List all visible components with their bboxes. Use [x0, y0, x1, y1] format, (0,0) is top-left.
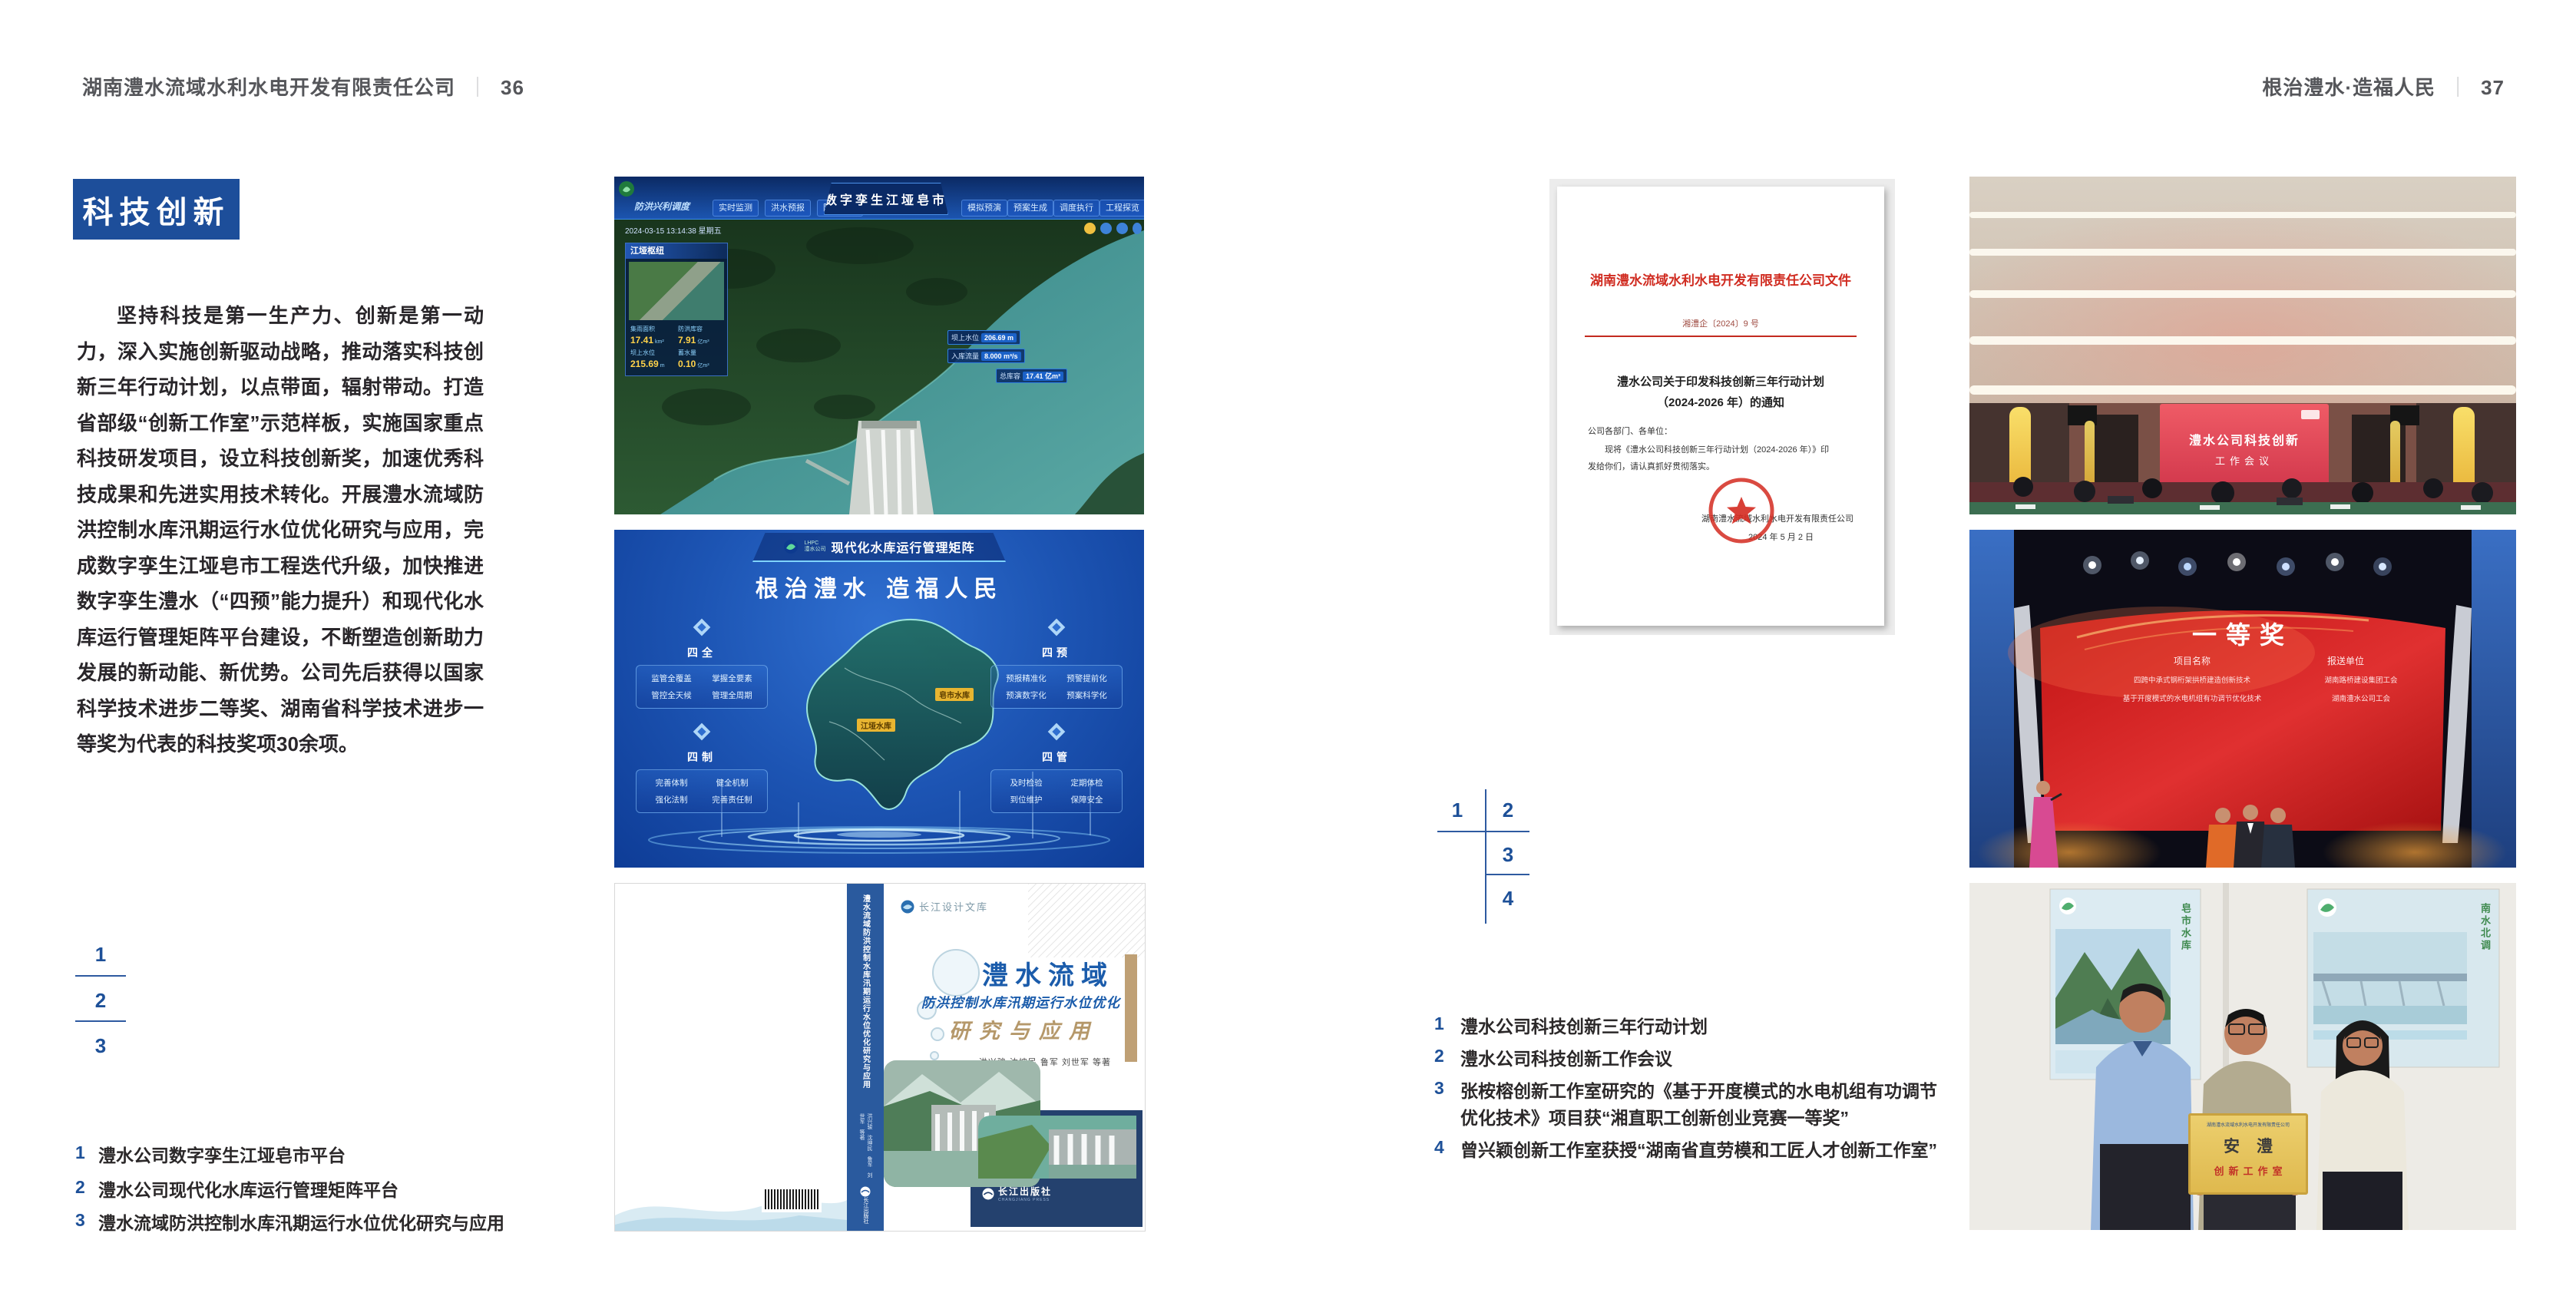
metric: 集雨面积 17.41km²: [630, 325, 675, 347]
diamond-icon: [690, 616, 713, 639]
tab-realtime-monitoring[interactable]: 实时监测: [713, 200, 759, 217]
photo-innovation-meeting: 澧水公司科技创新 工作会议: [1969, 177, 2516, 514]
layers-icon[interactable]: [1100, 223, 1112, 234]
group-item: 预报精准化: [997, 673, 1055, 684]
ripples: [649, 827, 1109, 853]
figure-official-document: 湖南澧水流域水利水电开发有限责任公司文件 湘澧企〔2024〕9 号 澧水公司关于…: [1549, 179, 1895, 635]
body-paragraph: 坚持科技是第一生产力、创新是第一动力，深入实施创新驱动战略，推动落实科技创新三年…: [77, 298, 484, 762]
document-number: 湘澧企〔2024〕9 号: [1557, 317, 1884, 329]
group-items: 预报精准化 预警提前化 预演数字化 预案科学化: [990, 665, 1123, 709]
figure-index-3: 3: [1493, 843, 1523, 867]
caption-number: 4: [1434, 1137, 1444, 1158]
app-logo-icon: [618, 180, 635, 197]
meeting-screen-line1: 澧水公司科技创新: [2160, 430, 2329, 448]
group-siguan: 四管 及时检验 定期体检 到位维护 保障安全: [990, 720, 1123, 813]
caption-text: 澧水流域防洪控制水库汛期运行水位优化研究与应用: [98, 1210, 504, 1237]
tab-flood-forecast[interactable]: 洪水预报: [765, 200, 811, 217]
caption-number: 1: [1434, 1013, 1444, 1034]
document-body-line2: 发给你们，请认真抓好贯彻落实。: [1588, 460, 1715, 472]
barcode: [765, 1189, 818, 1209]
figure-index-1: 1: [1442, 798, 1473, 822]
metric-value: 215.69: [630, 359, 659, 369]
dashboard-corner-label: 防洪兴利调度: [634, 200, 689, 213]
series-name: 长江设计文库: [919, 899, 988, 914]
group-item: 监管全覆盖: [643, 673, 700, 684]
watershed-map: [807, 620, 998, 809]
document-body-line1: 现将《澧水公司科技创新三年行动计划（2024-2026 年）》印: [1605, 443, 1829, 455]
book-title-main: 澧水流域: [982, 954, 1114, 992]
left-page-number: 36: [501, 76, 524, 99]
document-page: 湖南澧水流域水利水电开发有限责任公司文件 湘澧企〔2024〕9 号 澧水公司关于…: [1557, 187, 1884, 626]
group-items: 监管全覆盖 掌握全要素 管控全天候 管理全周期: [636, 665, 768, 709]
metric-unit: 亿m³: [697, 339, 709, 345]
group-item: 及时检验: [997, 777, 1055, 789]
tab-dispatch-execution[interactable]: 调度执行: [1053, 200, 1100, 217]
side-wall-right: [2472, 530, 2516, 868]
left-page-header: 湖南澧水流域水利水电开发有限责任公司｜36: [82, 72, 524, 101]
poster-right-label: 南水北调: [2478, 903, 2492, 1003]
chip-value: 206.69 m: [981, 333, 1017, 342]
caption-text: 澧水公司现代化水库运行管理矩阵平台: [98, 1177, 398, 1204]
caption-number: 2: [75, 1177, 85, 1198]
award-row2-unit: 湖南澧水公司工会: [2292, 693, 2430, 703]
group-item: 强化法制: [643, 794, 700, 805]
metric-label: 集雨面积: [630, 325, 675, 333]
tab-project-view[interactable]: 工程探览: [1100, 200, 1144, 217]
award-row1-project: 四跨中承式钢桁架拱桥建造创新技术: [2069, 674, 2315, 685]
group-items: 及时检验 定期体检 到位维护 保障安全: [990, 769, 1123, 813]
group-title: 四预: [990, 645, 1123, 660]
dashboard-title: 数字孪生江垭皂市: [824, 183, 948, 215]
chip-value: 8.000 m³/s: [981, 352, 1021, 361]
chip-label: 坝上水位: [951, 334, 979, 342]
reservoir-metrics: 集雨面积 17.41km² 防洪库容 7.91亿m³ 坝上水位 215.69m …: [626, 323, 727, 372]
metric-value: 7.91: [678, 335, 696, 346]
side-wall-left: [1969, 530, 2014, 868]
diamond-icon: [1045, 720, 1068, 743]
metric-value: 17.41: [630, 335, 653, 346]
caption-text: 曾兴颖创新工作室获授“湖南省直劳模和工匠人才创新工作室”: [1460, 1137, 1937, 1164]
caption-number: 2: [1434, 1046, 1444, 1066]
group-item: 管控全天候: [643, 689, 700, 701]
reservoir-panel: 江垭枢纽 集雨面积 17.41km² 防洪库容 7.91亿m³ 坝上水位 215…: [625, 243, 728, 376]
chip-value: 17.41 亿m³: [1023, 372, 1063, 381]
series-logo-icon: [901, 900, 914, 914]
caption-number: 1: [75, 1142, 85, 1163]
caption-text: 澧水公司科技创新三年行动计划: [1460, 1013, 1708, 1040]
group-item: 预演数字化: [997, 689, 1055, 701]
group-siyu: 四预 预报精准化 预警提前化 预演数字化 预案科学化: [990, 616, 1123, 709]
magazine-spread: 湖南澧水流域水利水电开发有限责任公司｜36 科技创新 坚持科技是第一生产力、创新…: [0, 0, 2576, 1306]
figure-matrix-platform: LHPC 澧水公司 现代化水库运行管理矩阵 根治澧水 造福人民 四全 监管全覆盖…: [614, 530, 1144, 868]
metric-unit: km²: [655, 339, 664, 345]
publisher-name-en: CHANGJIANG PRESS: [998, 1198, 1052, 1202]
official-seal: [1708, 477, 1775, 544]
publisher-logo: 长江出版社 CHANGJIANG PRESS: [982, 1185, 1052, 1202]
book-title-sub: 防洪控制水库汛期运行水位优化: [921, 993, 1120, 1012]
group-title: 四管: [990, 749, 1123, 765]
dam-photo-2: [978, 1116, 1136, 1179]
document-red-header: 湖南澧水流域水利水电开发有限责任公司文件: [1557, 269, 1884, 289]
right-header-slogan: 根治澧水·造福人民: [2262, 76, 2435, 99]
lhpc-logo-text: LHPC 澧水公司: [804, 541, 825, 553]
photo-innovation-studio-plaque: 皂市水库 南水北调 湖南澧水流域水利水电开发有限责任公司 安澧 创新工作室: [1969, 883, 2516, 1230]
award-title: 一等奖: [2042, 616, 2443, 651]
innovation-studio-plaque: 湖南澧水流域水利水电开发有限责任公司 安澧 创新工作室: [2188, 1113, 2308, 1195]
right-page-number: 37: [2481, 76, 2505, 99]
figure-index-divider: [1437, 831, 1529, 832]
diamond-icon: [690, 720, 713, 743]
group-item: 管理全周期: [703, 689, 761, 701]
logo-line1: LHPC: [804, 541, 825, 547]
audience: [1969, 477, 2516, 514]
matrix-header: LHPC 澧水公司 现代化水库运行管理矩阵: [752, 533, 1006, 562]
group-siquan: 四全 监管全覆盖 掌握全要素 管控全天候 管理全周期: [636, 616, 768, 709]
alert-icon[interactable]: [1084, 223, 1096, 234]
publisher-name: 长江出版社: [998, 1185, 1052, 1198]
group-item: 到位维护: [997, 794, 1055, 805]
spine-title: 澧水流域防洪控制水库汛期运行水位优化研究与应用: [860, 894, 871, 1109]
tab-plan-generation[interactable]: 预案生成: [1007, 200, 1053, 217]
group-item: 掌握全要素: [703, 673, 761, 684]
meeting-screen-line2: 工作会议: [2160, 453, 2329, 468]
caption-number: 3: [1434, 1078, 1444, 1099]
screen-logo: [2301, 410, 2320, 419]
group-title: 四全: [636, 645, 768, 660]
chip-label: 总库容: [1000, 372, 1020, 380]
logo-line2: 澧水公司: [804, 547, 825, 553]
metric: 防洪库容 7.91亿m³: [678, 325, 723, 347]
plaque-subtitle: 创新工作室: [2195, 1163, 2306, 1178]
plaque-title: 安澧: [2207, 1134, 2306, 1157]
caption-text: 澧水公司数字孪生江垭皂市平台: [98, 1142, 346, 1169]
caption-text: 张桉榕创新工作室研究的《基于开度模式的水电机组有功调节优化技术》项目获“湘直职工…: [1460, 1078, 1946, 1132]
inflow-chip: 入库流量8.000 m³/s: [947, 349, 1025, 363]
metric-label: 蓄水量: [678, 349, 723, 357]
figure-index-divider: [75, 1020, 126, 1022]
water-level-chip: 坝上水位206.69 m: [947, 330, 1020, 345]
section-title: 科技创新: [83, 187, 230, 232]
cover-hatch-pattern: [1028, 884, 1145, 957]
group-item: 预案科学化: [1058, 689, 1116, 701]
spine-authors: 洪兴骏 沈坤民 鲁军 刘世军 等著: [858, 1113, 873, 1182]
dashboard-timestamp: 2024-03-15 13:14:38 星期五: [625, 224, 722, 236]
right-page-header: 根治澧水·造福人民｜37: [2262, 72, 2505, 101]
reservoir-thumbnail: [629, 262, 724, 320]
series-logo: 长江设计文库: [901, 899, 988, 914]
section-title-box: 科技创新: [73, 179, 240, 240]
group-title: 四制: [636, 749, 768, 765]
group-item: 完善责任制: [703, 794, 761, 805]
poster-right: [2307, 889, 2499, 1067]
matrix-title: 现代化水库运行管理矩阵: [831, 537, 974, 556]
metric-label: 防洪库容: [678, 325, 723, 333]
capacity-chip: 总库容17.41 亿m³: [996, 369, 1067, 383]
group-item: 完善体制: [643, 777, 700, 789]
plaque-header: 湖南澧水流域水利水电开发有限责任公司: [2191, 1121, 2306, 1128]
metric: 坝上水位 215.69m: [630, 349, 675, 371]
chip-label: 入库流量: [951, 352, 979, 360]
metric-unit: m: [660, 363, 665, 369]
header-separator: ｜: [468, 76, 488, 99]
book-spine: 澧水流域防洪控制水库汛期运行水位优化研究与应用 洪兴骏 沈坤民 鲁军 刘世军 等…: [847, 884, 884, 1231]
poster-left-label: 皂市水库: [2178, 903, 2193, 1003]
document-title-line2: （2024-2026 年）的通知: [1557, 394, 1884, 410]
document-salutation: 公司各部门、各单位：: [1588, 425, 1672, 437]
caption-text: 澧水公司科技创新工作会议: [1460, 1046, 1672, 1073]
left-header-company: 湖南澧水流域水利水电开发有限责任公司: [82, 76, 455, 99]
figure-index-2: 2: [75, 989, 126, 1013]
map-label-jiangya[interactable]: 江垭水库: [857, 719, 895, 732]
map-label-zaoshi[interactable]: 皂市水库: [935, 688, 974, 701]
publisher-logo-icon: [982, 1188, 994, 1200]
header-separator: ｜: [2448, 76, 2469, 99]
figure-index-divider: [1485, 874, 1529, 875]
document-title-line1: 澧水公司关于印发科技创新三年行动计划: [1557, 373, 1884, 389]
metric-value: 0.10: [678, 359, 696, 369]
document-red-rule: [1585, 336, 1857, 337]
matrix-slogan: 根治澧水 造福人民: [614, 570, 1144, 603]
award-col2-header: 报送单位: [2269, 654, 2422, 667]
figure-index-2: 2: [1493, 798, 1523, 822]
award-recipients: [2206, 805, 2295, 868]
spine-publisher: 长江出版社: [861, 1197, 869, 1231]
lhpc-logo-icon: [783, 539, 799, 554]
figure-book-cover: 澧水流域防洪控制水库汛期运行水位优化研究与应用 洪兴骏 沈坤民 鲁军 刘世军 等…: [614, 883, 1146, 1232]
award-row1-unit: 湖南路桥建设集团工会: [2292, 674, 2430, 685]
reservoir-panel-title: 江垭枢纽: [626, 243, 727, 259]
figure-index-4: 4: [1493, 887, 1523, 911]
book-title-tail: 研究与应用: [949, 1014, 1099, 1044]
figure-index-vline: [1485, 789, 1486, 924]
caption-number: 3: [75, 1210, 85, 1231]
figure-index-3: 3: [75, 1034, 126, 1058]
metric-unit: 亿m³: [697, 363, 709, 369]
group-item: 预警提前化: [1058, 673, 1116, 684]
press-logo-icon: [860, 1186, 871, 1197]
figure-digital-twin-platform: 防洪兴利调度 实时监测 洪水预报 防洪预警 模拟预演 预案生成 调度执行 工程探…: [614, 177, 1144, 514]
figure-index-divider: [75, 975, 126, 977]
cover-accent-bar: [1125, 954, 1137, 1062]
award-row2-project: 基于开度模式的水电机组有功调节优化技术: [2069, 693, 2315, 703]
locate-icon[interactable]: [1116, 223, 1128, 234]
metric-label: 坝上水位: [630, 349, 675, 357]
group-sizhi: 四制 完善体制 健全机制 强化法制 完善责任制: [636, 720, 768, 813]
group-item: 健全机制: [703, 777, 761, 789]
award-col1-header: 项目名称: [2115, 654, 2269, 667]
group-item: 保障安全: [1058, 794, 1116, 805]
group-item: 定期体检: [1058, 777, 1116, 789]
diamond-icon: [1045, 616, 1068, 639]
group-items: 完善体制 健全机制 强化法制 完善责任制: [636, 769, 768, 813]
tab-simulation[interactable]: 模拟预演: [961, 200, 1007, 217]
figure-index-1: 1: [75, 943, 126, 967]
metric: 蓄水量 0.10亿m³: [678, 349, 723, 371]
photo-award-ceremony: 一等奖 项目名称 报送单位 四跨中承式钢桁架拱桥建造创新技术 湖南路桥建设集团工…: [1969, 530, 2516, 868]
settings-icon[interactable]: [1133, 223, 1142, 234]
